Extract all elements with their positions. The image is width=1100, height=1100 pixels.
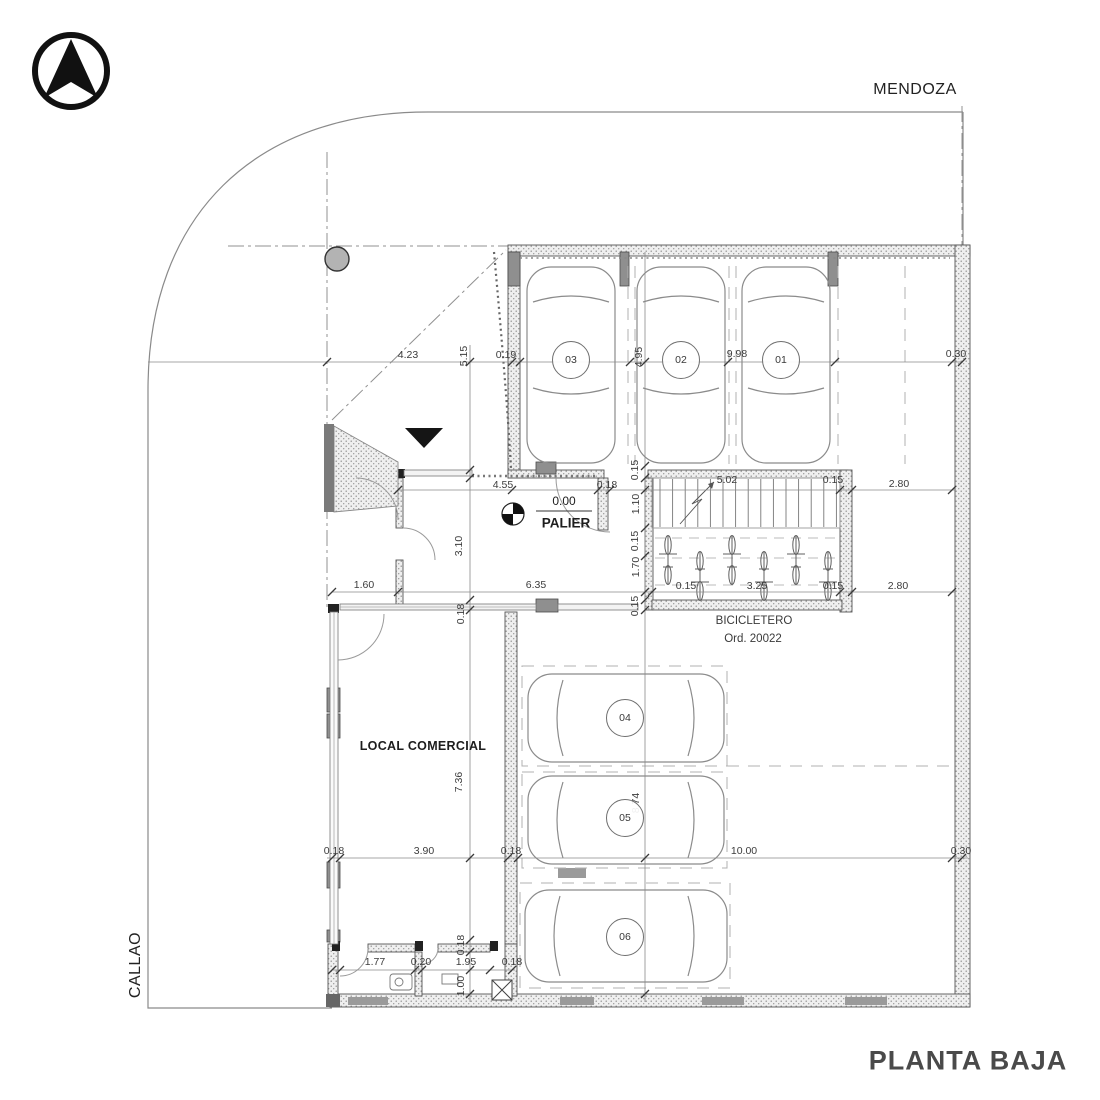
dimension-label: 4.95: [633, 347, 645, 367]
room-label-bicicletero: BICICLETERO: [716, 615, 793, 627]
plan-title: PLANTA BAJA: [869, 1046, 1068, 1077]
dimension-label: 7.36: [453, 772, 465, 792]
walls: [328, 245, 970, 1007]
palier-level-value: 0.00: [552, 494, 575, 508]
dimension-label: 2.80: [889, 478, 909, 490]
parking-bay-dashes-lower: [520, 666, 950, 988]
plan-linework: [0, 0, 1100, 1100]
dimension-label: 0.15: [629, 531, 641, 551]
dimension-label: 0.15: [823, 580, 843, 592]
parking-spot-circle: 04: [606, 699, 644, 737]
dimension-label: 0.15: [629, 460, 641, 480]
dimension-label: 0.19: [496, 349, 516, 361]
floor-plan-page: MENDOZA CALLAO PLANTA BAJA 0.00 PALIER L…: [0, 0, 1100, 1100]
bicicletero-ordinance: Ord. 20022: [724, 633, 782, 645]
street-label-mendoza: MENDOZA: [873, 81, 957, 99]
corner-block: [326, 994, 340, 1007]
dimension-ticks: [323, 358, 966, 998]
windows: [330, 470, 638, 944]
dimension-label: 1.00: [455, 976, 467, 996]
room-label-palier: PALIER: [542, 516, 591, 531]
dimension-label: 5.02: [717, 474, 737, 486]
entry-ramp: [334, 426, 398, 512]
door-arcs: [338, 478, 610, 976]
dimension-label: 0.15: [629, 596, 641, 616]
dimension-label: 1.77: [365, 956, 385, 968]
wall-nodes: [328, 469, 498, 951]
dimension-label: 5.15: [458, 346, 470, 366]
stairs: [652, 478, 840, 528]
dimension-label: 0.30: [951, 845, 971, 857]
dimension-label: 0.15: [823, 474, 843, 486]
dimension-label: 1.60: [354, 579, 374, 591]
dimension-label: 0.18: [324, 845, 344, 857]
dimension-label: 10.00: [731, 845, 757, 857]
dimension-label: 0.18: [455, 935, 467, 955]
street-label-callao: CALLAO: [127, 932, 145, 998]
parking-spot-circle: 01: [762, 341, 800, 379]
dimension-label: 3.25: [747, 580, 767, 592]
dimension-label: 0.20: [411, 956, 431, 968]
fixtures: [390, 974, 458, 990]
dimension-label: 3.10: [453, 536, 465, 556]
entry-direction-triangle: [405, 428, 443, 448]
dimension-label: 1.70: [630, 557, 642, 577]
dimension-label: 0.18: [597, 479, 617, 491]
dimension-label: 1.95: [456, 956, 476, 968]
dimension-label: 0.18: [502, 956, 522, 968]
dimension-label: 9.98: [727, 348, 747, 360]
column-marker: [325, 247, 349, 271]
dimension-label: 4.23: [398, 349, 418, 361]
parking-spot-circle: 02: [662, 341, 700, 379]
shaft-box: [492, 980, 512, 1000]
entry-side-wall: [324, 424, 334, 512]
dimension-label: 2.80: [888, 580, 908, 592]
dimension-label: 0.30: [946, 348, 966, 360]
parking-spot-circle: 05: [606, 799, 644, 837]
parking-spot-circle: 03: [552, 341, 590, 379]
dimension-label: 3.90: [414, 845, 434, 857]
room-label-local-comercial: LOCAL COMERCIAL: [360, 739, 487, 753]
dimension-label: 4.55: [493, 479, 513, 491]
dimension-label: 1.10: [630, 494, 642, 514]
dimension-label: 0.15: [676, 580, 696, 592]
dimension-label: 0.18: [501, 845, 521, 857]
parking-spot-circle: 06: [606, 918, 644, 956]
dimension-label: 0.18: [455, 604, 467, 624]
dimension-label: 6.35: [526, 579, 546, 591]
